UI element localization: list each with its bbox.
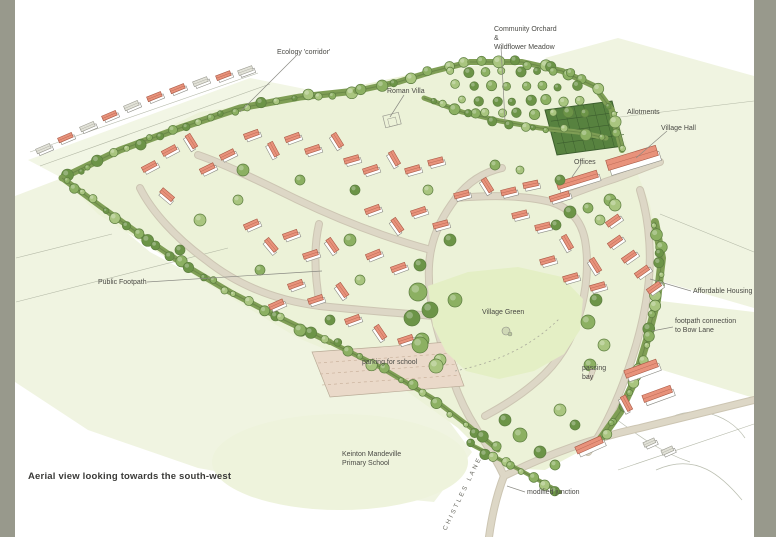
house [147,91,165,104]
right-gray-border [754,0,776,537]
existing-building [238,65,256,78]
view-caption: Aerial view looking towards the south-we… [28,471,231,482]
masterplan-illustration [0,0,776,537]
aerial-masterplan-figure: Ecology 'corridor'Community Orchard & Wi… [0,0,776,537]
house [216,70,234,83]
existing-building [193,76,211,89]
house [102,110,120,123]
house [642,385,675,406]
existing-building [80,121,98,134]
house [170,83,188,96]
left-gray-border [0,0,15,537]
existing-building [643,437,658,449]
house [58,132,76,145]
existing-building [124,100,142,113]
